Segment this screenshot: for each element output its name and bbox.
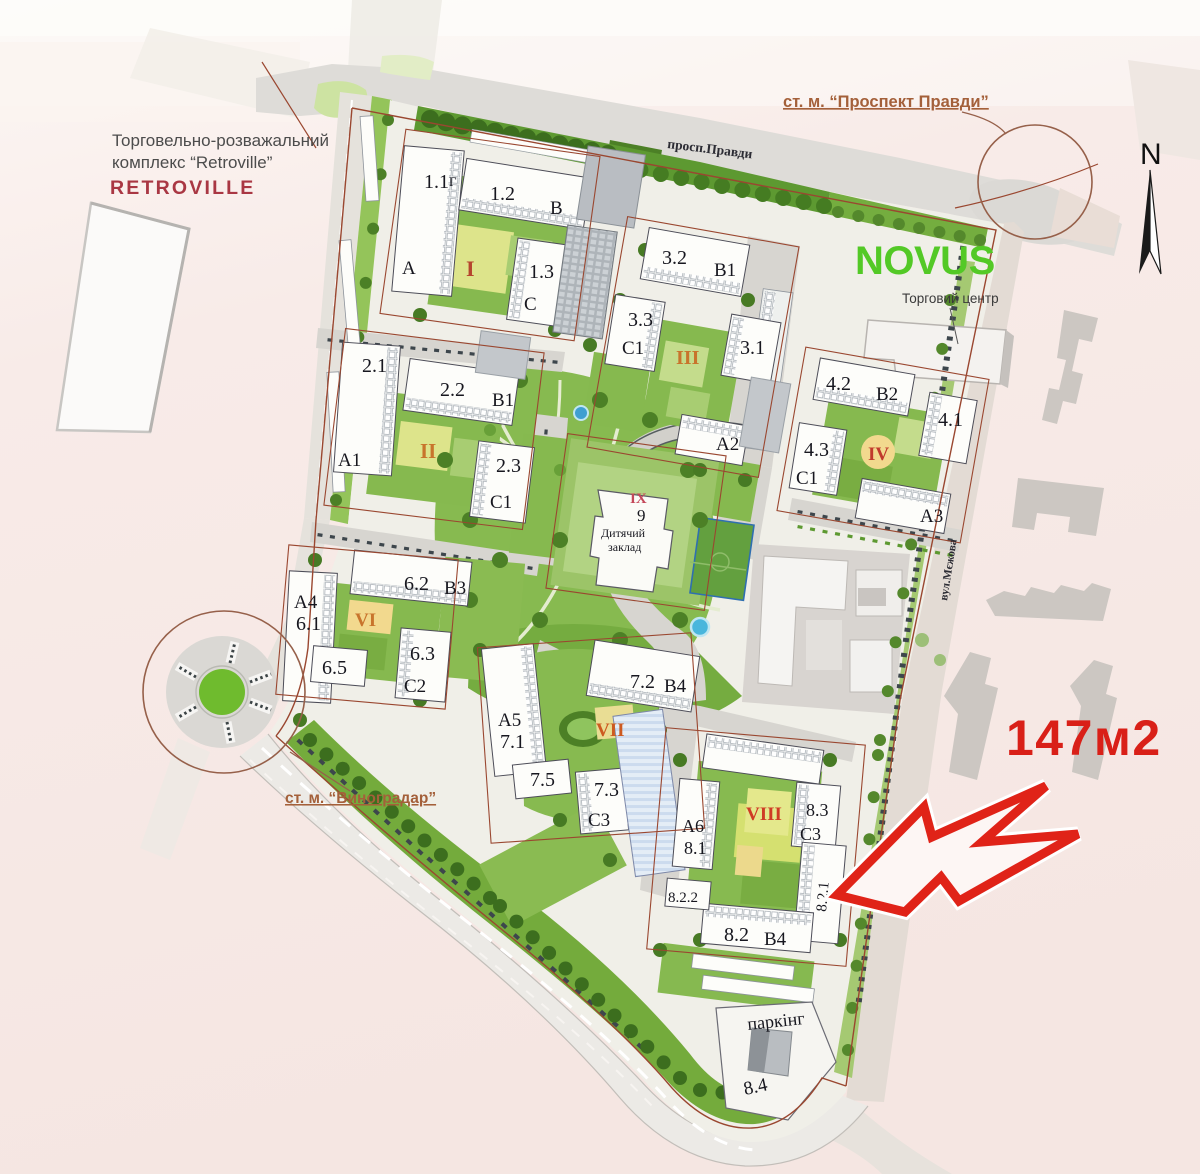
svg-text:Дитячий: Дитячий (601, 526, 646, 540)
svg-text:A6: A6 (682, 816, 704, 836)
svg-text:C1: C1 (490, 492, 512, 513)
svg-text:N: N (1140, 138, 1162, 171)
svg-text:3.1: 3.1 (740, 337, 765, 359)
svg-text:B1: B1 (492, 390, 514, 411)
svg-text:4.3: 4.3 (804, 439, 829, 461)
svg-text:C1: C1 (796, 468, 818, 489)
svg-text:8.3: 8.3 (806, 800, 829, 820)
svg-text:3.2: 3.2 (662, 247, 687, 269)
svg-text:B2: B2 (876, 384, 898, 405)
svg-text:IV: IV (868, 444, 889, 465)
svg-text:147м2: 147м2 (1006, 710, 1162, 766)
svg-text:9: 9 (637, 506, 646, 525)
svg-text:3.3: 3.3 (628, 309, 653, 331)
svg-text:7.2: 7.2 (630, 671, 655, 693)
svg-text:2.3: 2.3 (496, 455, 521, 477)
svg-text:A4: A4 (294, 592, 318, 613)
svg-text:Г: Г (449, 174, 457, 189)
svg-text:ст. м. “Виноградар”: ст. м. “Виноградар” (285, 790, 436, 807)
svg-text:8.2.2: 8.2.2 (668, 890, 698, 906)
svg-text:8.2: 8.2 (724, 924, 749, 946)
svg-text:A3: A3 (920, 506, 943, 527)
svg-text:II: II (420, 439, 436, 463)
svg-text:RETROVILLE: RETROVILLE (110, 177, 256, 199)
svg-text:1.2: 1.2 (490, 183, 515, 205)
svg-text:VIII: VIII (746, 804, 782, 825)
svg-text:A5: A5 (498, 710, 521, 731)
svg-text:A2: A2 (716, 434, 739, 455)
svg-text:A: A (402, 258, 416, 279)
svg-text:8.1: 8.1 (684, 838, 707, 858)
svg-text:4.2: 4.2 (826, 373, 851, 395)
svg-text:ст. м. “Проспект Правди”: ст. м. “Проспект Правди” (783, 93, 989, 111)
svg-text:C2: C2 (404, 676, 426, 697)
svg-text:1.3: 1.3 (529, 261, 554, 283)
svg-text:C: C (524, 294, 537, 315)
svg-text:комплекс “Retroville”: комплекс “Retroville” (112, 153, 273, 172)
svg-text:2.1: 2.1 (362, 355, 387, 377)
svg-text:B4: B4 (664, 676, 687, 697)
svg-text:6.3: 6.3 (410, 643, 435, 665)
svg-text:7.1: 7.1 (500, 731, 525, 753)
svg-text:2.2: 2.2 (440, 379, 465, 401)
svg-text:C3: C3 (588, 810, 610, 831)
svg-text:VII: VII (596, 720, 625, 741)
svg-text:III: III (676, 347, 700, 369)
svg-text:6.1: 6.1 (296, 613, 321, 635)
svg-text:C3: C3 (800, 824, 821, 844)
svg-text:Торговий центр: Торговий центр (902, 291, 999, 306)
svg-text:A1: A1 (338, 450, 361, 471)
svg-text:VI: VI (355, 610, 376, 631)
svg-text:7.3: 7.3 (594, 779, 619, 801)
svg-text:C1: C1 (622, 338, 644, 359)
svg-text:B3: B3 (444, 578, 466, 599)
svg-text:7.5: 7.5 (530, 769, 555, 791)
svg-text:заклад: заклад (608, 540, 641, 554)
svg-text:6.2: 6.2 (404, 573, 429, 595)
svg-text:NOVUS: NOVUS (855, 239, 995, 283)
svg-text:B1: B1 (714, 260, 736, 281)
svg-text:1.1: 1.1 (424, 171, 449, 193)
svg-text:Торговельно-розважальний: Торговельно-розважальний (112, 131, 329, 150)
svg-text:6.5: 6.5 (322, 657, 347, 679)
svg-text:B4: B4 (764, 929, 787, 950)
svg-text:I: I (466, 256, 475, 281)
svg-text:B: B (550, 198, 563, 219)
svg-text:4.1: 4.1 (938, 409, 963, 431)
svg-text:IX: IX (630, 491, 647, 507)
